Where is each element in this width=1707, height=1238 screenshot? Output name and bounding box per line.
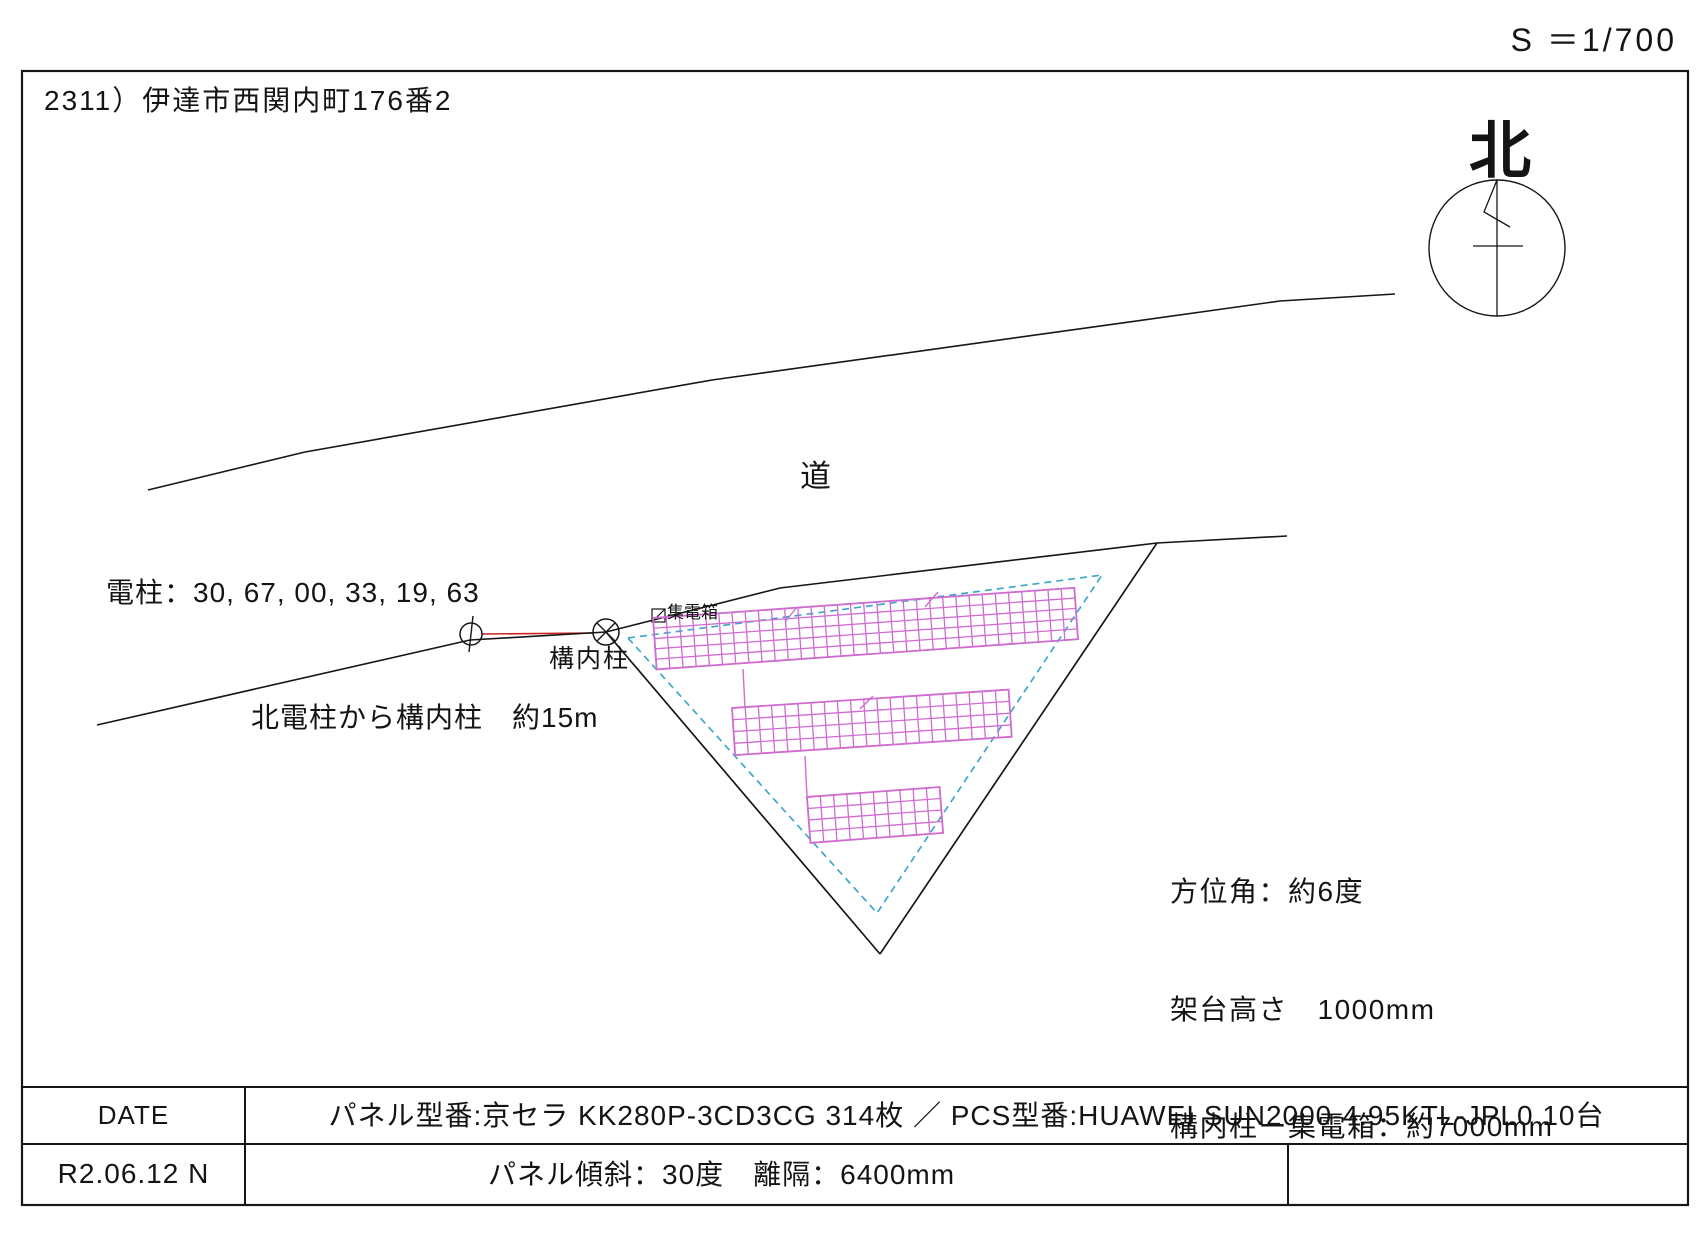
site-plan-page: S ＝1/700 2311）伊達市西関内町176番2 北 道 電柱：30, 67… bbox=[0, 0, 1707, 1238]
collector-box-label: 集電箱 bbox=[667, 603, 718, 623]
panel-grid-line bbox=[732, 612, 736, 663]
panel-grid-line bbox=[734, 713, 1011, 731]
panel-grid-line bbox=[719, 613, 723, 664]
notes-block: 方位角：約6度 架台高さ 1000mm 構内柱ー集電箱：約7000mm bbox=[1170, 801, 1553, 1218]
north-symbol-label: 北 bbox=[1445, 116, 1555, 187]
panel-grid-line bbox=[824, 606, 828, 657]
panel-grid-line bbox=[850, 604, 854, 655]
road-upper-edge bbox=[148, 294, 1395, 490]
pole-mast-line bbox=[469, 616, 473, 652]
panel-grid-line bbox=[929, 598, 933, 649]
panel-array-south bbox=[807, 787, 943, 843]
panel-grid-line bbox=[666, 617, 670, 668]
panel-grid-line bbox=[943, 597, 947, 648]
panel-array-north bbox=[653, 588, 1078, 670]
scale-label: S ＝1/700 bbox=[1511, 22, 1677, 59]
array-connector-1 bbox=[743, 669, 745, 708]
panel-grid-line bbox=[837, 605, 841, 656]
panel-grid-line bbox=[995, 593, 999, 644]
road-label: 道 bbox=[800, 459, 831, 495]
panel-grid-line bbox=[982, 594, 986, 645]
panel-grid-line bbox=[758, 610, 762, 661]
site-boundary-right bbox=[880, 543, 1157, 954]
panel-grid-line bbox=[1061, 589, 1065, 640]
panel-grid-line bbox=[692, 615, 696, 666]
table-tilt-spec: パネル傾斜：30度 離隔：6400mm bbox=[488, 1159, 955, 1191]
panel-grid-line bbox=[956, 596, 960, 647]
panel-grid-line bbox=[877, 602, 881, 653]
panel-grid-line bbox=[1048, 590, 1052, 641]
note-mount-height: 架台高さ 1000mm bbox=[1170, 983, 1553, 1036]
panel-grid-line bbox=[745, 611, 749, 662]
premise-pole-label: 構内柱 bbox=[549, 645, 630, 674]
panel-array-middle bbox=[732, 690, 1012, 755]
panel-grid-line bbox=[733, 701, 1010, 719]
panel-grid-line bbox=[771, 610, 775, 661]
pole-distance-note: 北電柱から構内柱 約15m bbox=[251, 702, 598, 734]
note-azimuth: 方位角：約6度 bbox=[1170, 865, 1553, 918]
panel-grid-line bbox=[1008, 593, 1012, 644]
panel-grid-line bbox=[916, 599, 920, 650]
table-date-value: R2.06.12 N bbox=[22, 1158, 245, 1190]
panel-grid-line bbox=[903, 600, 907, 651]
panel-grid-line bbox=[679, 616, 683, 667]
panel-grid-line bbox=[1022, 592, 1026, 643]
panel-grid-line bbox=[890, 601, 894, 652]
utility-pole-numbers: 電柱：30, 67, 00, 33, 19, 63 bbox=[106, 577, 480, 609]
table-date-header: DATE bbox=[22, 1101, 245, 1131]
table-panel-spec: パネル型番:京セラ KK280P-3CD3CG 314枚 ／ PCS型番:HUA… bbox=[245, 1100, 1688, 1132]
site-address-title: 2311）伊達市西関内町176番2 bbox=[44, 85, 453, 117]
panel-grid-line bbox=[969, 595, 973, 646]
panel-grid-line bbox=[734, 725, 1011, 743]
panel-grid-line bbox=[864, 603, 868, 654]
panel-grid-line bbox=[1035, 591, 1039, 642]
string-mark-2 bbox=[925, 592, 938, 607]
array-connector-2 bbox=[805, 756, 807, 797]
panel-grid-line bbox=[811, 607, 815, 658]
road-lower-edge bbox=[97, 536, 1287, 725]
